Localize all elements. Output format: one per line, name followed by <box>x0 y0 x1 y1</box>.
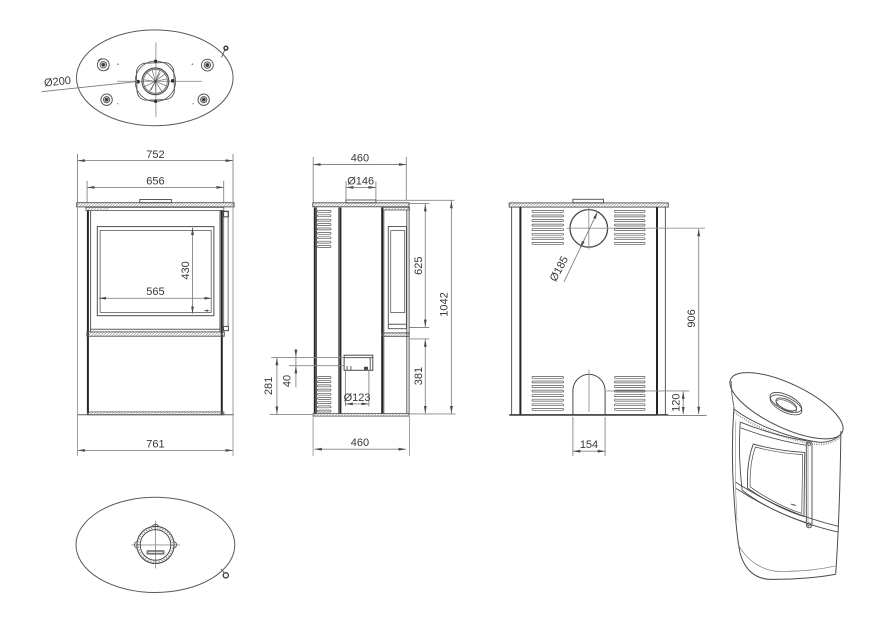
svg-text:460: 460 <box>351 437 369 449</box>
svg-text:625: 625 <box>413 257 425 275</box>
svg-text:761: 761 <box>146 438 164 450</box>
svg-text:381: 381 <box>413 367 425 385</box>
svg-text:40: 40 <box>282 375 294 387</box>
svg-text:656: 656 <box>146 176 164 188</box>
svg-text:Ø123: Ø123 <box>344 392 371 404</box>
svg-text:906: 906 <box>686 309 698 327</box>
svg-text:460: 460 <box>351 153 369 165</box>
svg-text:281: 281 <box>263 377 275 395</box>
svg-text:752: 752 <box>146 149 164 161</box>
svg-text:154: 154 <box>580 439 598 451</box>
svg-text:Ø146: Ø146 <box>347 175 374 187</box>
svg-text:430: 430 <box>180 261 192 279</box>
svg-text:565: 565 <box>146 286 164 298</box>
svg-text:120: 120 <box>671 394 683 412</box>
svg-text:1042: 1042 <box>439 292 451 316</box>
